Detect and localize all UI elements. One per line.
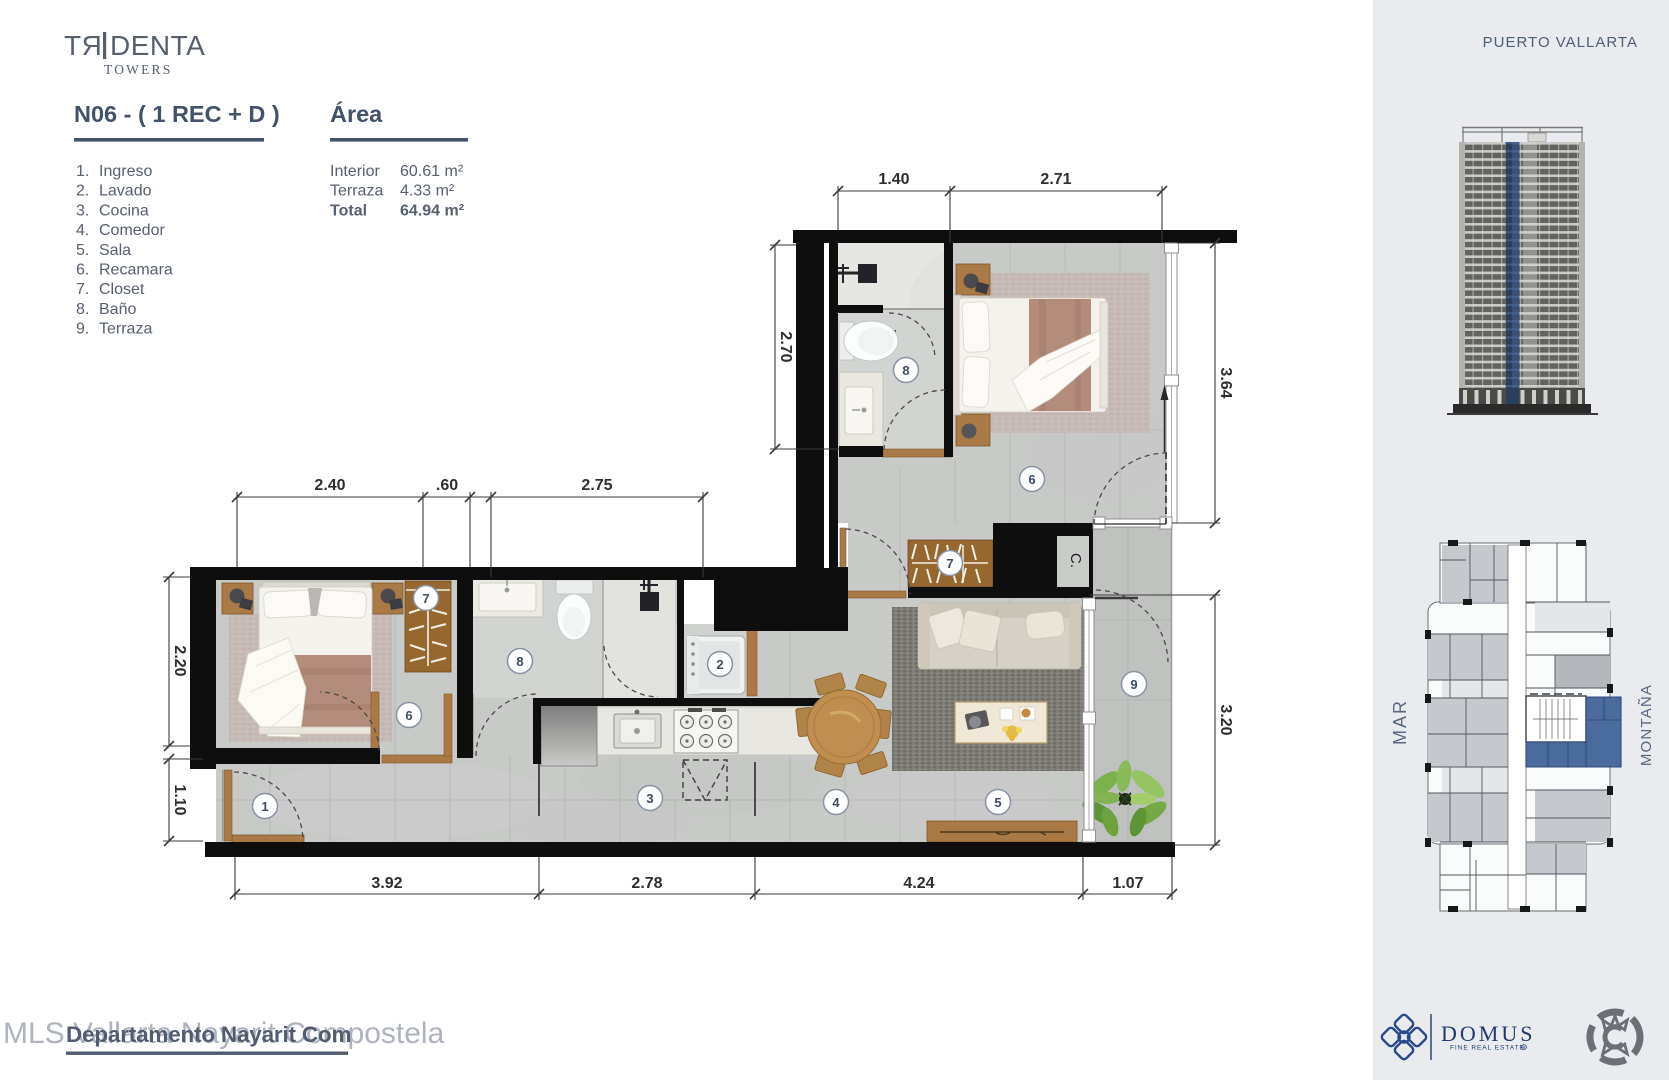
svg-text:Departamento Nayarit Com: Departamento Nayarit Com <box>66 1022 351 1047</box>
svg-text:MONTAÑA: MONTAÑA <box>1638 684 1655 766</box>
svg-text:3.64: 3.64 <box>1217 367 1234 398</box>
svg-text:Terraza: Terraza <box>99 321 152 338</box>
svg-text:Ingreso: Ingreso <box>99 163 152 180</box>
svg-text:TЯ: TЯ <box>64 30 102 61</box>
svg-text:Área: Área <box>330 100 383 127</box>
svg-text:7: 7 <box>946 556 953 571</box>
svg-text:Interior: Interior <box>330 163 380 180</box>
svg-text:N06 - ( 1 REC + D ): N06 - ( 1 REC + D ) <box>74 101 280 127</box>
svg-text:PUERTO VALLARTA: PUERTO VALLARTA <box>1483 34 1638 51</box>
svg-text:2.71: 2.71 <box>1040 171 1071 188</box>
svg-text:3.92: 3.92 <box>371 875 402 892</box>
svg-text:Cocina: Cocina <box>99 202 149 219</box>
svg-text:6: 6 <box>1028 472 1035 487</box>
svg-text:Comedor: Comedor <box>99 222 165 239</box>
svg-text:4: 4 <box>832 795 840 810</box>
svg-text:4.24: 4.24 <box>903 875 934 892</box>
svg-text:TOWERS: TOWERS <box>104 62 172 77</box>
svg-text:5.: 5. <box>76 242 89 259</box>
svg-text:3: 3 <box>646 791 653 806</box>
svg-text:Total: Total <box>330 202 367 219</box>
svg-text:9.: 9. <box>76 321 89 338</box>
svg-text:5: 5 <box>994 795 1001 810</box>
svg-text:1.: 1. <box>76 163 89 180</box>
svg-text:2.: 2. <box>76 183 89 200</box>
svg-text:4.: 4. <box>76 222 89 239</box>
svg-text:DENTA: DENTA <box>110 30 205 61</box>
svg-text:Terraza: Terraza <box>330 183 383 200</box>
svg-text:Recamara: Recamara <box>99 262 173 279</box>
svg-text:2: 2 <box>716 657 723 672</box>
svg-text:3.20: 3.20 <box>1217 704 1234 735</box>
svg-text:FINE REAL ESTATE: FINE REAL ESTATE <box>1450 1045 1525 1052</box>
svg-text:Lavado: Lavado <box>99 183 152 200</box>
svg-text:4.33 m²: 4.33 m² <box>400 183 455 200</box>
svg-text:1.40: 1.40 <box>878 171 909 188</box>
svg-text:2.78: 2.78 <box>631 875 662 892</box>
svg-text:C.: C. <box>1067 553 1084 568</box>
svg-text:9: 9 <box>1130 677 1137 692</box>
svg-text:7.: 7. <box>76 281 89 298</box>
svg-text:2.75: 2.75 <box>581 477 612 494</box>
svg-text:8.: 8. <box>76 301 89 318</box>
svg-text:R: R <box>1523 1045 1526 1050</box>
svg-text:.60: .60 <box>436 477 458 494</box>
svg-text:2.20: 2.20 <box>171 645 188 676</box>
svg-text:6.: 6. <box>76 262 89 279</box>
svg-text:MAR: MAR <box>1390 699 1410 745</box>
svg-text:1.10: 1.10 <box>171 784 188 815</box>
svg-text:64.94 m²: 64.94 m² <box>400 202 464 219</box>
svg-text:8: 8 <box>516 654 523 669</box>
svg-text:8: 8 <box>902 363 909 378</box>
svg-text:3.: 3. <box>76 202 89 219</box>
svg-text:1: 1 <box>261 799 268 814</box>
svg-text:7: 7 <box>422 591 429 606</box>
svg-text:1.07: 1.07 <box>1112 875 1143 892</box>
svg-text:60.61 m²: 60.61 m² <box>400 163 464 180</box>
svg-text:6: 6 <box>405 708 412 723</box>
svg-text:Closet: Closet <box>99 281 145 298</box>
svg-text:Sala: Sala <box>99 242 131 259</box>
svg-text:Baño: Baño <box>99 301 136 318</box>
svg-text:2.70: 2.70 <box>777 331 794 362</box>
svg-text:2.40: 2.40 <box>314 477 345 494</box>
svg-text:DOMUS: DOMUS <box>1441 1021 1535 1046</box>
